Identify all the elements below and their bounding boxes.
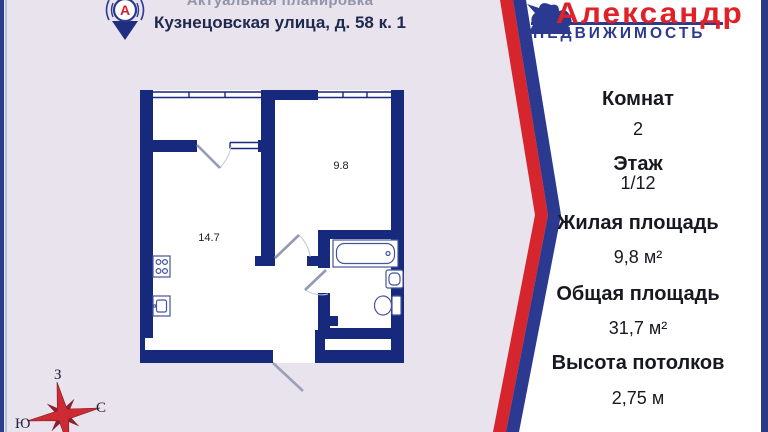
kitchen-sink-icon [153,296,170,316]
flyer-page: { "header": { "line1": "Актуальная плани… [0,0,768,432]
detail-value-ceiling-height: 2,75 м [520,388,756,409]
detail-value-rooms: 2 [520,119,756,140]
detail-label-total-area: Общая площадь [520,283,756,306]
bathtub-icon [333,240,398,267]
pin-letter: А [120,2,130,18]
toilet-icon [375,296,402,315]
compass-label-north: С [96,400,106,416]
detail-value-living-area: 9,8 м² [520,247,756,268]
compass-label-west: З [54,367,62,383]
header-subtitle: Актуальная планировка [120,0,440,9]
right-frame-bar [761,0,768,432]
left-frame-line [5,0,7,432]
detail-value-total-area: 31,7 м² [520,318,756,339]
room-label-kitchen-living: 14.7 [198,232,219,244]
compass-rose-icon: З С Ю [14,358,114,432]
compass-label-south: Ю [15,416,30,432]
detail-label-living-area: Жилая площадь [520,212,756,235]
room-label-bedroom: 9.8 [333,160,348,172]
header-address: Кузнецовская улица, д. 58 к. 1 [110,13,450,33]
agency-subtitle: НЕДВИЖИМОСТЬ [533,25,705,43]
detail-label-ceiling-height: Высота потолков [520,352,756,375]
detail-value-floor: 1/12 [520,173,756,194]
detail-label-rooms: Комнат [520,88,756,111]
location-pin-icon: А [103,0,147,42]
stove-icon [153,256,170,277]
floor-plan: 14.7 9.8 [133,88,410,400]
wall-vent-notch [145,338,154,350]
wash-basin-icon [386,270,403,288]
left-frame-bar [0,0,4,432]
